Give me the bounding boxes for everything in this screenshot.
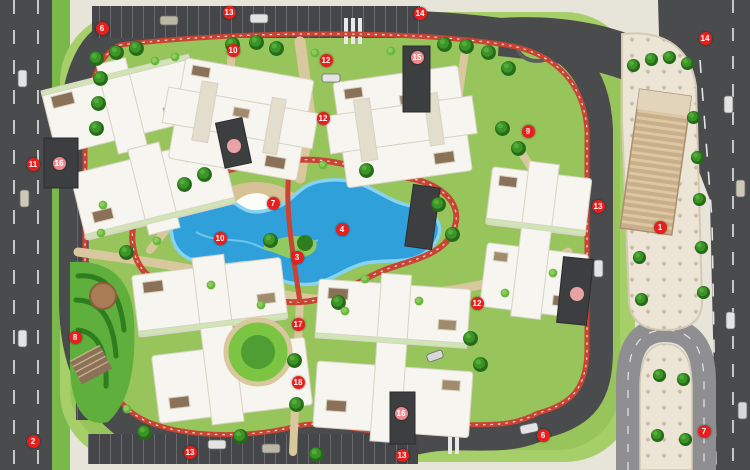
map-marker-13[interactable]: 13 (592, 200, 605, 213)
map-marker-3[interactable]: 3 (291, 251, 304, 264)
map-marker-4[interactable]: 4 (336, 223, 349, 236)
map-marker-14[interactable]: 14 (699, 32, 712, 45)
map-marker-16[interactable]: 16 (53, 157, 66, 170)
map-marker-13[interactable]: 13 (396, 449, 409, 462)
cluster-top-right (321, 64, 482, 190)
map-marker-16[interactable]: 16 (395, 407, 408, 420)
dropoff-island (640, 344, 692, 470)
playground-sandpit (90, 283, 116, 309)
map-marker-10[interactable]: 10 (214, 232, 227, 245)
map-marker-13[interactable]: 13 (223, 6, 236, 19)
map-marker-12[interactable]: 12 (317, 112, 330, 125)
map-marker-12[interactable]: 12 (471, 297, 484, 310)
south-parking-row (88, 434, 418, 464)
map-marker-15[interactable]: 15 (411, 51, 424, 64)
map-marker-2[interactable]: 2 (27, 435, 40, 448)
map-marker-7[interactable]: 7 (698, 425, 711, 438)
map-marker-11[interactable]: 11 (27, 158, 40, 171)
map-marker-6[interactable]: 6 (537, 429, 550, 442)
map-marker-18[interactable]: 18 (292, 376, 305, 389)
map-marker-6[interactable]: 6 (96, 22, 109, 35)
map-marker-9[interactable]: 9 (522, 125, 535, 138)
master-plan-map: 6131014121512111610743912131148213171816… (0, 0, 750, 470)
map-marker-7[interactable]: 7 (267, 197, 280, 210)
map-marker-1[interactable]: 1 (654, 221, 667, 234)
site-plan-canvas (0, 0, 750, 470)
map-marker-13[interactable]: 13 (184, 446, 197, 459)
map-marker-17[interactable]: 17 (292, 318, 305, 331)
map-marker-8[interactable]: 8 (69, 331, 82, 344)
map-marker-10[interactable]: 10 (227, 44, 240, 57)
map-marker-14[interactable]: 14 (414, 7, 427, 20)
map-marker-12[interactable]: 12 (320, 54, 333, 67)
